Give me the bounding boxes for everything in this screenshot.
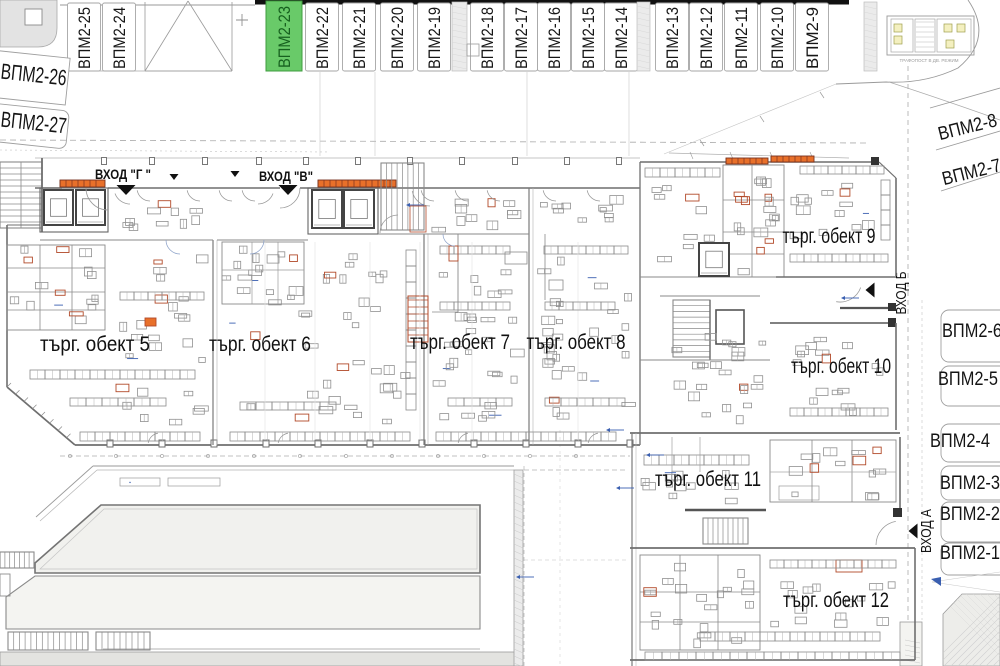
svg-text:търг. обект 6: търг. обект 6 <box>209 333 311 356</box>
svg-text:търг. обект 9: търг. обект 9 <box>783 225 876 248</box>
svg-text:ВПМ2-5: ВПМ2-5 <box>938 369 998 390</box>
svg-text:търг. обект 7: търг. обект 7 <box>410 331 510 354</box>
svg-text:ВХОД "Г ": ВХОД "Г " <box>95 166 151 182</box>
svg-text:ВПМ2-1: ВПМ2-1 <box>940 543 1000 564</box>
svg-text:ВПМ2-21: ВПМ2-21 <box>350 7 369 69</box>
svg-text:ВПМ2-6: ВПМ2-6 <box>942 321 1000 342</box>
svg-text:търг. обект 8: търг. обект 8 <box>527 331 626 354</box>
svg-text:ВПМ2-22: ВПМ2-22 <box>313 7 332 69</box>
svg-text:ВПМ2-20: ВПМ2-20 <box>388 7 407 69</box>
svg-text:ВПМ2-13: ВПМ2-13 <box>663 7 682 69</box>
svg-text:ТРАФОПОСТ В ДВ. РЕЖИМ: ТРАФОПОСТ В ДВ. РЕЖИМ <box>900 58 959 63</box>
svg-text:ВПМ2-9: ВПМ2-9 <box>803 7 822 69</box>
svg-text:ВПМ2-3: ВПМ2-3 <box>940 473 1000 494</box>
svg-text:ВПМ2-2: ВПМ2-2 <box>940 504 1000 525</box>
svg-text:ВПМ2-14: ВПМ2-14 <box>612 7 631 69</box>
svg-text:ВПМ2-10: ВПМ2-10 <box>768 7 787 69</box>
svg-text:ВПМ2-4: ВПМ2-4 <box>930 431 990 452</box>
svg-text:ВПМ2-25: ВПМ2-25 <box>75 7 94 69</box>
svg-text:▪: ▪ <box>129 480 131 486</box>
svg-text:ВХОД А: ВХОД А <box>918 509 935 553</box>
svg-text:ВПМ2-16: ВПМ2-16 <box>545 7 564 69</box>
svg-text:търг. обект 10: търг. обект 10 <box>791 355 891 378</box>
svg-text:търг. обект 5: търг. обект 5 <box>40 333 150 356</box>
svg-text:ВПМ2-24: ВПМ2-24 <box>110 7 129 69</box>
svg-text:ВПМ2-15: ВПМ2-15 <box>579 7 598 69</box>
svg-text:ВХОД "В": ВХОД "В" <box>259 168 313 184</box>
svg-text:ВПМ2-19: ВПМ2-19 <box>425 7 444 69</box>
svg-text:ВПМ2-12: ВПМ2-12 <box>697 7 716 69</box>
svg-text:търг. обект 11: търг. обект 11 <box>655 468 761 491</box>
svg-text:ВПМ2-17: ВПМ2-17 <box>512 7 531 69</box>
svg-text:търг. обект 12: търг. обект 12 <box>783 589 889 612</box>
svg-text:ВПМ2-23: ВПМ2-23 <box>275 6 294 68</box>
svg-text:ВПМ2-18: ВПМ2-18 <box>478 7 497 69</box>
svg-text:ВПМ2-11: ВПМ2-11 <box>732 7 751 69</box>
